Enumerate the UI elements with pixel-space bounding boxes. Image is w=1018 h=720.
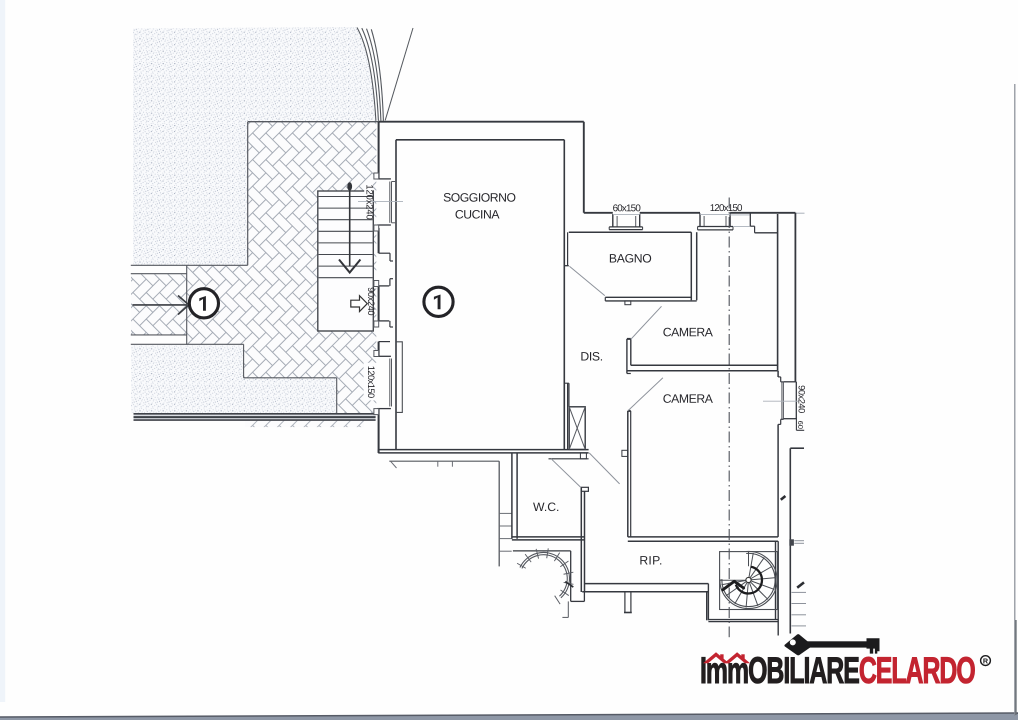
svg-text:R: R xyxy=(983,656,989,665)
